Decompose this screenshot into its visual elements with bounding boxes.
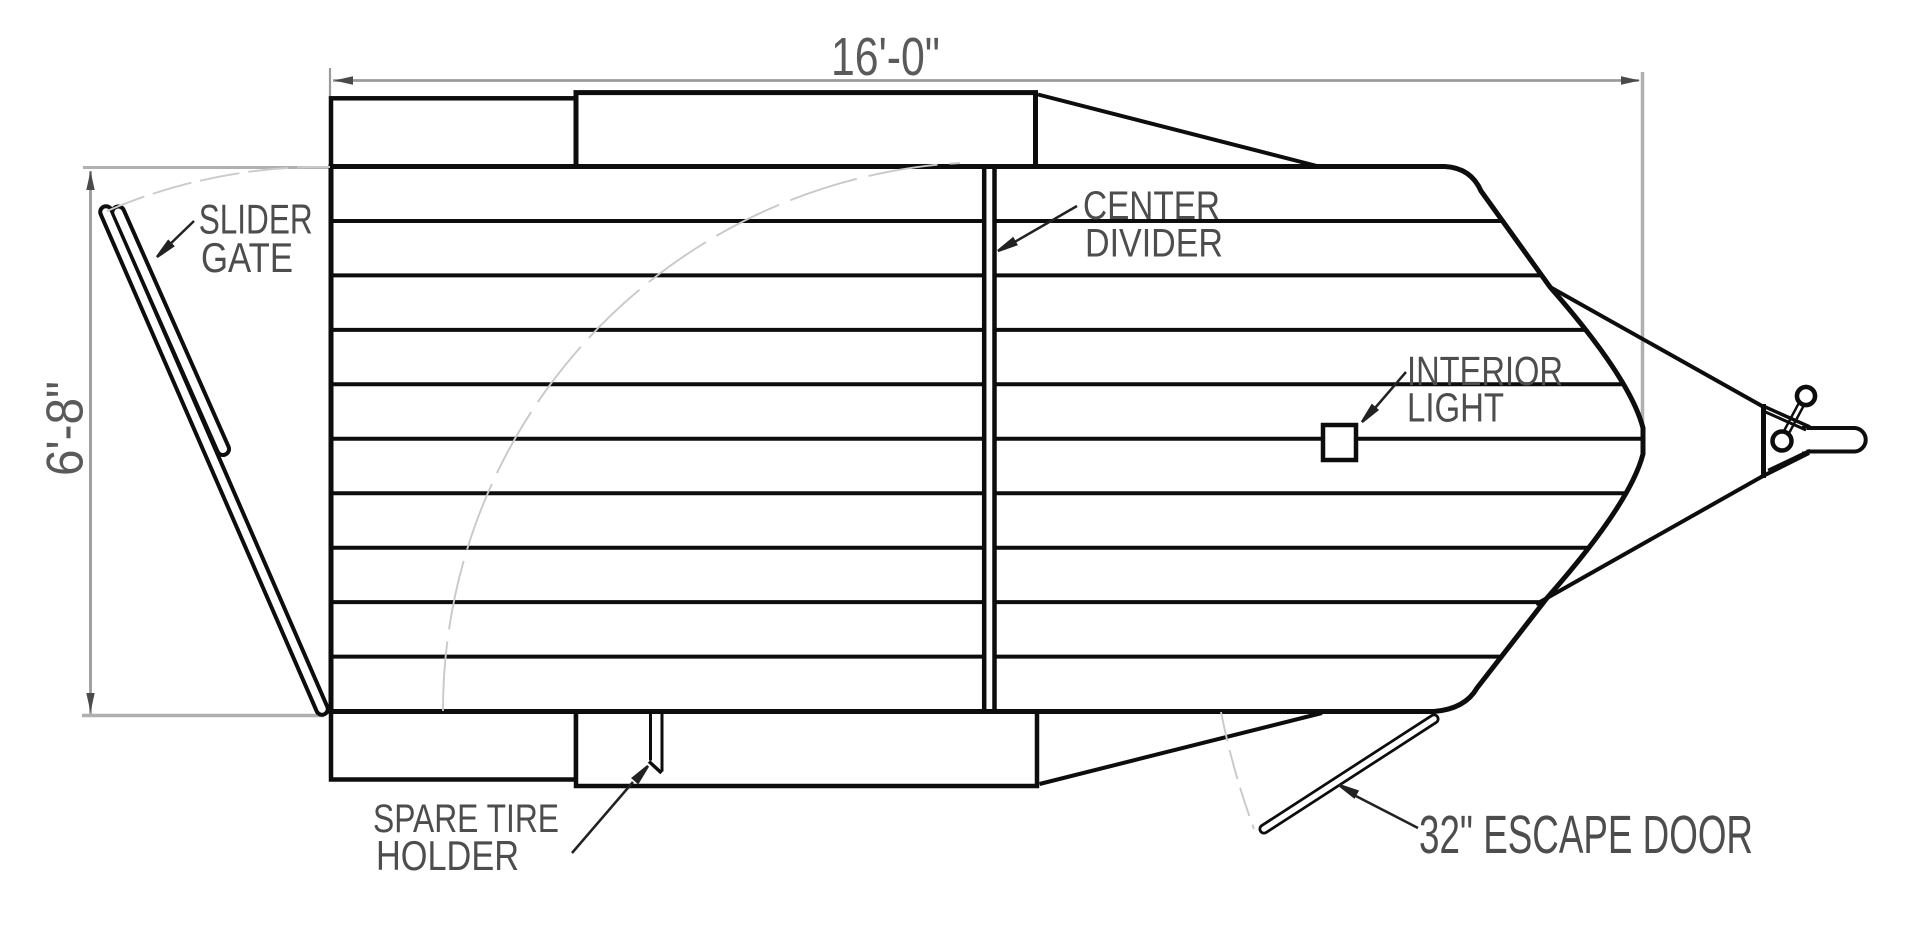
- svg-text:6'-8": 6'-8": [37, 381, 95, 476]
- svg-text:32" ESCAPE DOOR: 32" ESCAPE DOOR: [1419, 805, 1753, 865]
- svg-text:16'-0": 16'-0": [831, 27, 940, 87]
- svg-text:HOLDER: HOLDER: [376, 832, 519, 879]
- svg-text:LIGHT: LIGHT: [1407, 385, 1504, 431]
- svg-text:GATE: GATE: [201, 234, 293, 281]
- svg-text:DIVIDER: DIVIDER: [1085, 222, 1223, 266]
